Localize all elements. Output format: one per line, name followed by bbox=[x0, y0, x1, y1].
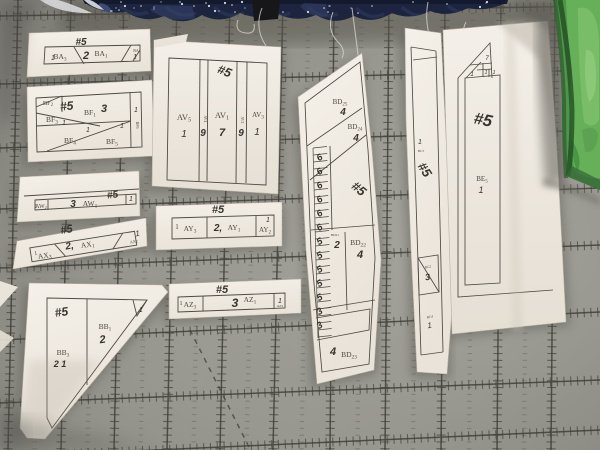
svg-text:1: 1 bbox=[179, 300, 182, 307]
svg-text:AV2: AV2 bbox=[240, 117, 244, 124]
svg-text:1: 1 bbox=[254, 127, 260, 138]
svg-text:3: 3 bbox=[232, 296, 239, 310]
svg-text:1: 1 bbox=[266, 217, 270, 224]
svg-text:1: 1 bbox=[139, 307, 143, 314]
svg-text:1: 1 bbox=[35, 204, 38, 210]
svg-text:4: 4 bbox=[339, 107, 346, 118]
svg-text:AZ2: AZ2 bbox=[277, 304, 284, 308]
svg-text:#5: #5 bbox=[216, 284, 229, 296]
svg-text:9: 9 bbox=[200, 128, 206, 139]
svg-text:#5: #5 bbox=[54, 304, 69, 320]
svg-text:1: 1 bbox=[175, 223, 179, 231]
svg-text:9: 9 bbox=[238, 128, 244, 139]
svg-text:2,: 2, bbox=[213, 223, 222, 234]
svg-text:7: 7 bbox=[219, 127, 226, 139]
svg-text:1: 1 bbox=[418, 139, 422, 146]
svg-text:AV4: AV4 bbox=[203, 116, 207, 123]
svg-text:1: 1 bbox=[134, 107, 138, 114]
svg-text:4: 4 bbox=[356, 249, 363, 261]
svg-text:1: 1 bbox=[485, 70, 488, 76]
svg-text:3: 3 bbox=[70, 199, 76, 210]
svg-text:#5: #5 bbox=[212, 204, 225, 216]
svg-text:1: 1 bbox=[86, 127, 90, 134]
svg-text:BD21: BD21 bbox=[331, 233, 340, 237]
svg-text:2: 2 bbox=[82, 50, 89, 62]
svg-text:BC5: BC5 bbox=[418, 149, 425, 153]
svg-text:2 1: 2 1 bbox=[53, 359, 67, 369]
svg-text:4: 4 bbox=[329, 346, 336, 358]
svg-text:1: 1 bbox=[493, 70, 496, 76]
svg-text:3: 3 bbox=[101, 103, 107, 115]
svg-text:1: 1 bbox=[120, 123, 124, 130]
svg-text:1: 1 bbox=[62, 120, 66, 127]
svg-text:4: 4 bbox=[352, 133, 359, 144]
svg-text:2: 2 bbox=[333, 240, 340, 251]
svg-text:1: 1 bbox=[129, 196, 133, 203]
svg-text:#5: #5 bbox=[106, 189, 119, 202]
svg-text:#5: #5 bbox=[59, 98, 74, 113]
svg-text:1: 1 bbox=[51, 55, 55, 62]
svg-text:BF6: BF6 bbox=[135, 122, 140, 129]
svg-text:2,: 2, bbox=[64, 240, 75, 252]
svg-text:1: 1 bbox=[133, 54, 137, 61]
svg-text:1: 1 bbox=[470, 72, 473, 78]
svg-text:1: 1 bbox=[478, 185, 483, 195]
svg-text:BA: BA bbox=[133, 48, 139, 53]
svg-text:#5: #5 bbox=[75, 37, 87, 48]
svg-text:1: 1 bbox=[181, 129, 187, 140]
